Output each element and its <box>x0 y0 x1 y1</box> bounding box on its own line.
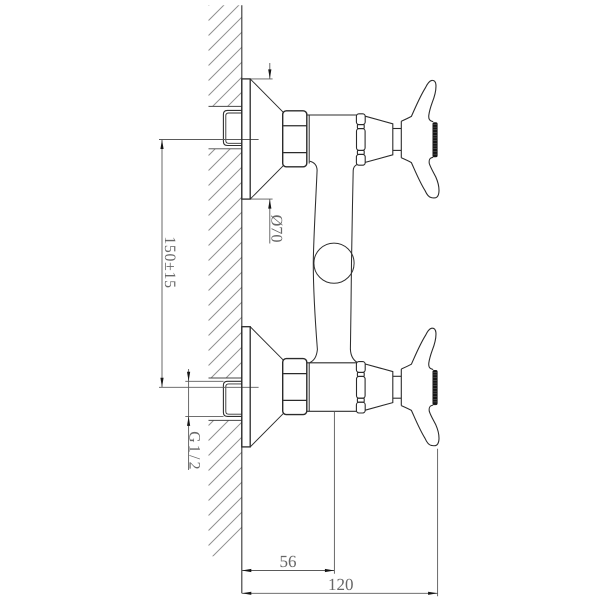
svg-text:Ø70: Ø70 <box>268 215 286 243</box>
svg-text:56: 56 <box>280 552 297 571</box>
svg-text:150±15: 150±15 <box>161 236 178 288</box>
svg-text:G1/2: G1/2 <box>185 431 202 471</box>
svg-text:120: 120 <box>328 575 354 594</box>
